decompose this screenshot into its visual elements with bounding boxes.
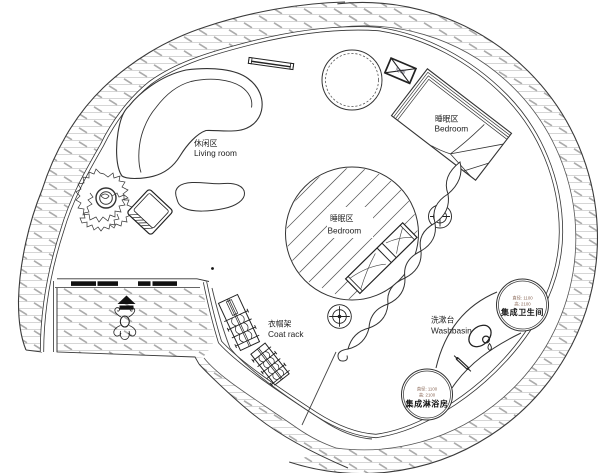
svg-text:直径: 1100: 直径: 1100 (417, 386, 438, 392)
svg-text:直径: 1100: 直径: 1100 (512, 295, 533, 301)
svg-text:睡眠区: 睡眠区 (435, 115, 459, 124)
svg-text:集成淋浴房: 集成淋浴房 (405, 399, 449, 409)
svg-text:Bedroom: Bedroom (435, 124, 469, 134)
svg-text:集成卫生间: 集成卫生间 (500, 307, 544, 317)
svg-text:洗漱台: 洗漱台 (431, 315, 455, 325)
svg-text:Living room: Living room (194, 148, 237, 158)
svg-text:衣帽架: 衣帽架 (268, 319, 292, 329)
svg-text:休闲区: 休闲区 (194, 138, 218, 148)
svg-text:Washbasin: Washbasin (431, 326, 472, 336)
svg-text:Coat rack: Coat rack (268, 329, 304, 339)
svg-text:Bedroom: Bedroom (328, 226, 362, 236)
svg-text:高: 2100: 高: 2100 (514, 301, 531, 308)
svg-text:高: 2100: 高: 2100 (419, 392, 436, 399)
svg-text:睡眠区: 睡眠区 (330, 214, 354, 223)
